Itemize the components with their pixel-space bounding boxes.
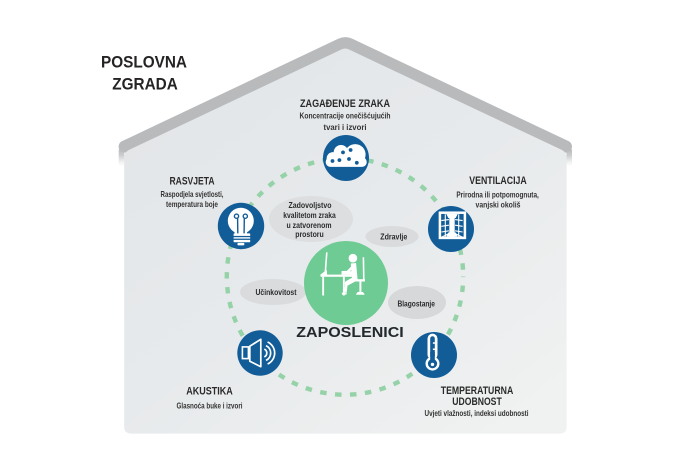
svg-text:ZGRADA: ZGRADA [112,76,178,94]
svg-text:AKUSTIKA: AKUSTIKA [186,386,233,398]
svg-text:RASVJETA: RASVJETA [170,175,215,187]
svg-text:ZAPOSLENICI: ZAPOSLENICI [296,324,404,341]
svg-text:Raspodjela svjetlosti,: Raspodjela svjetlosti, [161,189,224,199]
svg-text:VENTILACIJA: VENTILACIJA [469,175,527,187]
svg-text:POSLOVNA: POSLOVNA [101,54,187,72]
svg-text:Glasnoća buke i izvori: Glasnoća buke i izvori [177,400,243,410]
svg-text:Blagostanje: Blagostanje [397,298,435,308]
svg-text:UDOBNOST: UDOBNOST [452,396,502,408]
svg-text:vanjski okoliš: vanjski okoliš [476,199,521,209]
svg-text:kvalitetom zraka: kvalitetom zraka [283,210,336,220]
svg-text:Prirodna ili potpomognuta,: Prirodna ili potpomognuta, [456,189,539,199]
svg-text:ZAGAĐENJE ZRAKA: ZAGAĐENJE ZRAKA [300,98,390,110]
svg-text:Učinkovitost: Učinkovitost [256,287,297,297]
svg-text:temperatura boje: temperatura boje [166,199,218,209]
svg-text:Uvjeti vlažnosti, indeksi udob: Uvjeti vlažnosti, indeksi udobnosti [425,408,529,418]
svg-text:Zdravlje: Zdravlje [380,231,407,241]
svg-text:tvari i izvori: tvari i izvori [324,122,367,132]
svg-text:Koncentracije onečišćujućih: Koncentracije onečišćujućih [300,111,391,121]
svg-text:prostoru: prostoru [295,229,324,239]
svg-text:Zadovoljstvo: Zadovoljstvo [289,200,332,210]
